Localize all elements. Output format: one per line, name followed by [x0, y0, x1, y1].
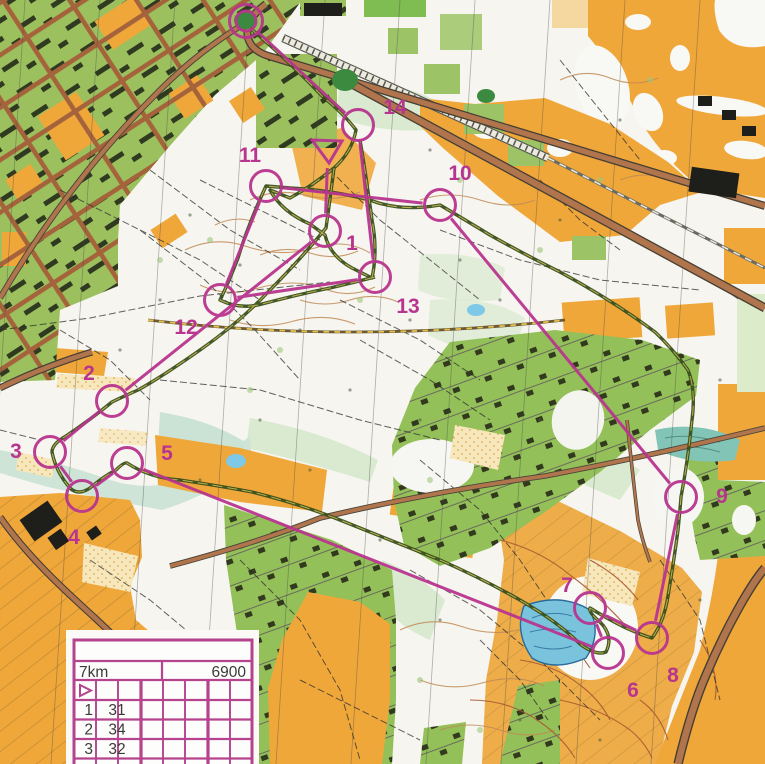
- svg-text:6900: 6900: [212, 664, 247, 681]
- svg-text:1: 1: [346, 232, 358, 255]
- svg-text:6: 6: [627, 679, 639, 702]
- svg-text:34: 34: [108, 722, 126, 739]
- svg-text:14: 14: [383, 96, 407, 119]
- svg-text:12: 12: [174, 316, 197, 339]
- svg-text:9: 9: [716, 485, 728, 508]
- svg-text:4: 4: [68, 526, 80, 549]
- svg-text:11: 11: [239, 144, 262, 167]
- svg-text:5: 5: [161, 442, 173, 465]
- svg-text:2: 2: [84, 722, 93, 739]
- svg-text:31: 31: [108, 702, 125, 719]
- svg-text:3: 3: [84, 741, 93, 758]
- svg-text:3: 3: [10, 440, 22, 463]
- svg-text:1: 1: [84, 702, 93, 719]
- svg-text:7: 7: [561, 574, 573, 597]
- svg-text:10: 10: [448, 162, 471, 185]
- svg-text:32: 32: [108, 741, 125, 758]
- svg-text:13: 13: [396, 295, 419, 318]
- svg-text:8: 8: [667, 664, 679, 687]
- svg-text:7km: 7km: [79, 664, 108, 681]
- svg-text:2: 2: [83, 362, 95, 385]
